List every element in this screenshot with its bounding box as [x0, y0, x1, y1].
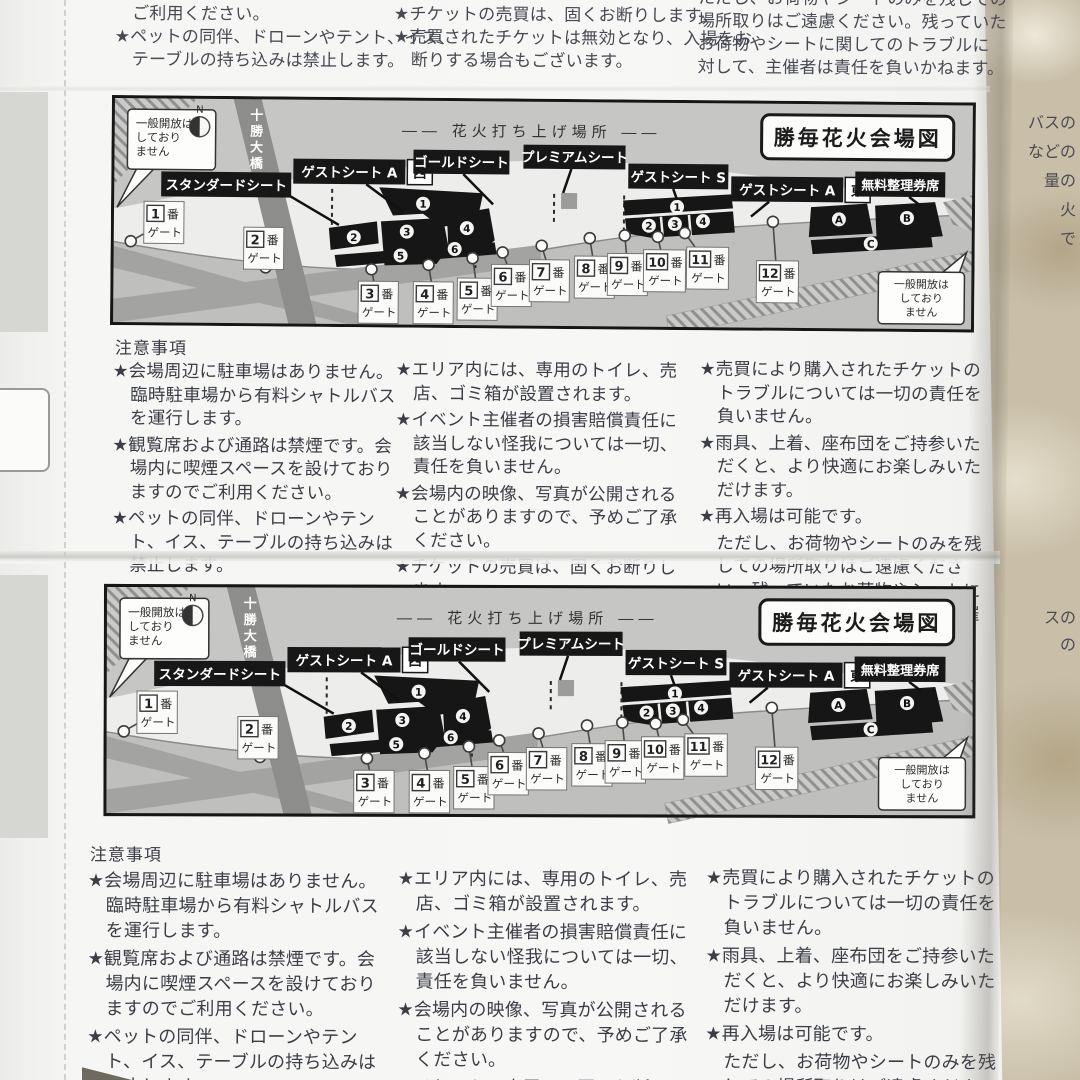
- svg-text:11: 11: [691, 252, 709, 267]
- svg-text:10: 10: [648, 255, 666, 270]
- left-ticket-map-fragment-lower: [0, 575, 48, 838]
- svg-text:2: 2: [645, 221, 652, 233]
- legend-box: 勝毎花火会場図: [761, 115, 953, 161]
- note-item: ★会場内の映像、写真が公開されることがありますので、予めご了承ください。: [397, 997, 699, 1073]
- svg-text:1: 1: [673, 202, 680, 214]
- bridge-label: 十勝大橋: [247, 108, 263, 173]
- note-item: ★売買により購入されたチケットのトラブルについては一切の責任を負いません。: [706, 865, 998, 941]
- notes-column-1: ★会場周辺に駐車場はありません。臨時駐車場から有料シャトルバスを運行します。 ★…: [87, 868, 388, 1080]
- svg-text:ゲート: ゲート: [761, 285, 796, 299]
- notes-column-3: ★売買により購入されたチケットのトラブルについては一切の責任を負いません。 ★雨…: [705, 865, 998, 1080]
- gate-4-label: 4 番 ゲート: [413, 282, 453, 324]
- seat-label-guest-s: ゲストシート S: [631, 169, 727, 187]
- gate-3-label: 3 番 ゲート: [358, 281, 398, 323]
- svg-text:ゲート: ゲート: [533, 284, 568, 298]
- fragment-column-3: ただし、お荷物やシートのみを残しての 場所取りはご遠慮ください。残っていた お荷…: [698, 0, 1008, 81]
- note-item: ★観覧席および通路は禁煙です。会場内に喫煙スペースを設けておりますのでご利用くだ…: [112, 434, 399, 506]
- svg-text:一般開放は: 一般開放は: [136, 116, 194, 131]
- seat-label-gold: ゴールドシート: [414, 154, 509, 172]
- venue-map-1: 十勝大橋: [110, 95, 976, 333]
- svg-text:6: 6: [498, 270, 507, 285]
- note-item: ★雨具、上着、座布団をご持参いただくと、より快適にお楽しみいただけます。: [705, 943, 997, 1019]
- svg-text:ません: ません: [905, 306, 938, 319]
- left-ticket-text-fragment-lower: スの の: [1044, 604, 1076, 658]
- svg-text:8: 8: [581, 262, 590, 277]
- svg-text:番: 番: [630, 260, 642, 274]
- gate-11-label: 11 番 ゲート: [686, 247, 728, 289]
- svg-text:3: 3: [403, 227, 410, 239]
- note-item: ★イベント主催者の損害賠償責任に該当しない怪我については一切、責任を負いません。: [397, 919, 699, 995]
- perforation-line: [64, 0, 66, 1080]
- svg-text:ゲート: ゲート: [247, 251, 282, 265]
- seat-label-guest-a-west: ゲストシート A: [301, 164, 398, 182]
- svg-text:7: 7: [536, 266, 545, 281]
- map-title: ―― 花火打ち上げ場所 ――: [402, 122, 662, 142]
- svg-text:4: 4: [699, 216, 706, 228]
- svg-text:5: 5: [397, 250, 404, 262]
- notes-section-2: 注意事項 ★会場周辺に駐車場はありません。臨時駐車場から有料シャトルバスを運行し…: [0, 840, 1000, 1080]
- svg-text:2: 2: [350, 232, 357, 244]
- svg-text:番: 番: [167, 207, 179, 221]
- svg-text:4: 4: [420, 288, 429, 303]
- left-ticket-map-fragment: [0, 92, 48, 332]
- svg-text:番: 番: [267, 233, 279, 247]
- svg-text:ゲート: ゲート: [147, 225, 182, 239]
- seat-label-premium: プレミアムシート: [521, 150, 628, 167]
- svg-text:番: 番: [783, 267, 795, 281]
- svg-text:4: 4: [463, 223, 470, 235]
- svg-text:C: C: [867, 239, 875, 251]
- note-item: ★エリア内には、専用のトイレ、売店、ゴミ箱が設置されます。: [398, 866, 700, 917]
- notes-section-1: 注意事項 ★会場周辺に駐車場はありません。臨時駐車場から有料シャトルバスを運行し…: [0, 330, 990, 555]
- notes-column-1: ★会場周辺に駐車場はありません。臨時駐車場から有料シャトルバスを運行します。 ★…: [112, 361, 400, 583]
- svg-text:B: B: [903, 213, 911, 225]
- gate-1-label: 1 番 ゲート: [144, 201, 184, 243]
- note-item: ★会場周辺に駐車場はありません。臨時駐車場から有料シャトルバスを運行します。: [88, 868, 388, 944]
- svg-text:番: 番: [552, 266, 564, 280]
- gate-9-label: 9 番 ゲート: [607, 253, 647, 295]
- svg-text:ゲート: ゲート: [611, 277, 646, 291]
- svg-text:A: A: [835, 214, 844, 226]
- note-item: ★エリア内には、専用のトイレ、売店、ゴミ箱が設置されます。: [396, 359, 693, 408]
- svg-text:6: 6: [451, 244, 458, 256]
- svg-text:しており: しており: [136, 130, 181, 144]
- svg-text:1: 1: [151, 207, 160, 222]
- svg-text:番: 番: [514, 271, 526, 285]
- svg-text:ゲート: ゲート: [461, 302, 496, 316]
- note-item: ★イベント主催者の損害賠償責任に該当しない怪我については一切、責任を負いません。: [395, 409, 692, 481]
- svg-text:ゲート: ゲート: [648, 274, 683, 288]
- svg-text:番: 番: [480, 284, 492, 298]
- svg-text:5: 5: [464, 284, 473, 299]
- gate-2-label: 2 番 ゲート: [243, 227, 283, 269]
- seat-label-standard: スタンダードシート: [165, 176, 287, 194]
- photo-of-fireworks-tickets: バスの などの 量の 火 で スの の ご利用ください。 ★ペットの同伴、ドロー…: [0, 0, 1080, 1080]
- launch-point-marker: [561, 193, 577, 209]
- note-item: ★再入場は可能です。: [699, 506, 988, 531]
- note-item-continuation: ただし、お荷物やシートのみを残しての場所取りはご遠慮ください。残っていたお荷物や…: [705, 1049, 997, 1080]
- svg-text:しており: しており: [900, 292, 943, 305]
- note-item: ★観覧席および通路は禁煙です。会場内に喫煙スペースを設けておりますのでご利用くだ…: [87, 946, 387, 1022]
- seat-label-guest-a-east: ゲストシート A: [739, 181, 836, 199]
- svg-text:3: 3: [671, 219, 678, 231]
- note-item: ★会場内の映像、写真が公開されることがありますので、予めご了承ください。: [395, 483, 692, 555]
- note-item: ★再入場は可能です。: [705, 1021, 997, 1047]
- svg-text:1: 1: [419, 199, 426, 211]
- gate-12-label: 12 番 ゲート: [756, 261, 798, 303]
- svg-text:3: 3: [365, 287, 374, 302]
- notes-header: 注意事項: [90, 840, 380, 866]
- gate-7-label: 7 番 ゲート: [529, 260, 569, 302]
- svg-text:番: 番: [670, 256, 682, 270]
- svg-text:番: 番: [381, 287, 393, 301]
- note-item: ★雨具、上着、座布団をご持参いただくと、より快適にお楽しみいただけます。: [699, 432, 988, 504]
- svg-text:N: N: [196, 105, 204, 116]
- svg-text:ゲート: ゲート: [691, 271, 726, 285]
- svg-text:ゲート: ゲート: [417, 306, 452, 320]
- ticket-fold-line-top: [0, 86, 990, 92]
- svg-text:ません: ません: [135, 144, 169, 158]
- svg-text:番: 番: [436, 288, 448, 302]
- venue-map-2: [103, 572, 976, 830]
- seat-label-free: 無料整理券席: [861, 178, 939, 195]
- paper-gap-notch: [82, 1066, 137, 1080]
- svg-text:ゲート: ゲート: [495, 288, 530, 302]
- svg-text:ゲート: ゲート: [362, 305, 397, 319]
- svg-text:勝毎花火会場図: 勝毎花火会場図: [774, 126, 942, 151]
- ticket-fold-line-mid: [0, 551, 1000, 564]
- notes-column-2: ★エリア内には、専用のトイレ、売店、ゴミ箱が設置されます。 ★イベント主催者の損…: [397, 866, 700, 1080]
- svg-text:2: 2: [251, 233, 260, 248]
- note-item: ★売買により購入されたチケットのトラブルについては一切の責任を負いません。: [699, 359, 988, 431]
- gate-10-label: 10 番 ゲート: [643, 250, 685, 292]
- notes-header: 注意事項: [115, 334, 391, 360]
- left-ticket-text-fragment: バスの などの 量の 火 で: [1028, 108, 1076, 253]
- note-item: ★会場周辺に駐車場はありません。臨時駐車場から有料シャトルバスを運行します。: [112, 361, 399, 433]
- note-item: ★ペットの同伴、ドローンやテント、イス、テーブルの持ち込みは禁止します。: [112, 508, 399, 580]
- gate-6-label: 6 番 ゲート: [491, 264, 531, 306]
- svg-text:9: 9: [614, 259, 623, 274]
- svg-text:一般開放は: 一般開放は: [894, 277, 949, 291]
- svg-text:12: 12: [761, 266, 779, 281]
- note-item: ★チケットの売買は、固くお断りします。: [397, 1075, 699, 1080]
- svg-text:番: 番: [714, 253, 726, 267]
